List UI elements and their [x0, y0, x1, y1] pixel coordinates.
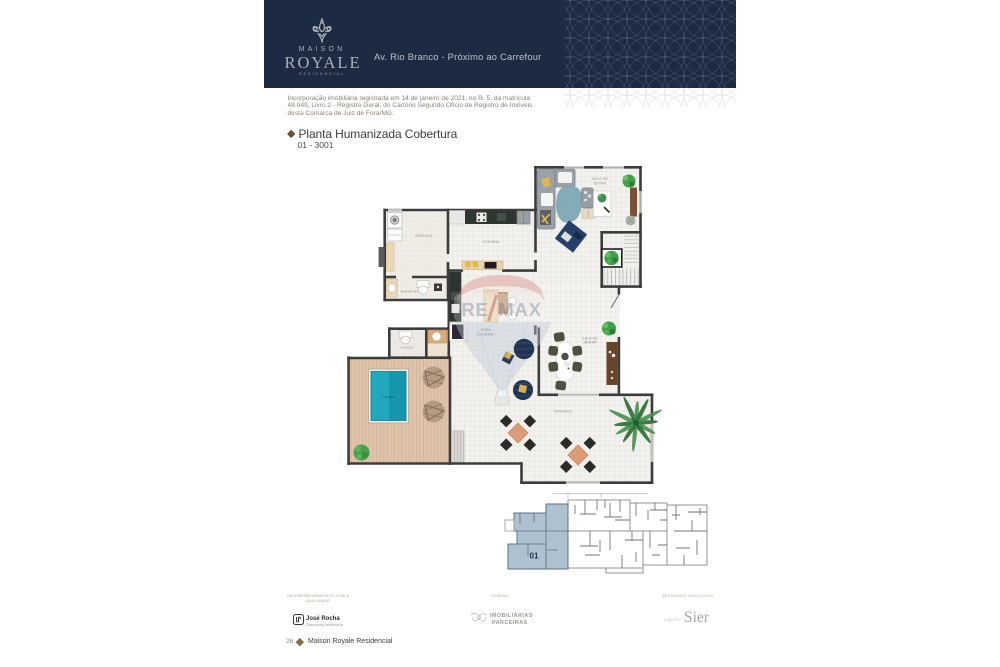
svg-text:PISCINA: PISCINA: [382, 395, 394, 399]
svg-text:ESTAR: ESTAR: [594, 182, 607, 186]
svg-text:TERRAÇO: TERRAÇO: [554, 410, 573, 414]
svg-text:SERVIÇO: SERVIÇO: [415, 234, 432, 238]
svg-text:BANHEIRO: BANHEIRO: [401, 290, 419, 294]
svg-text:RE: RE: [461, 299, 488, 320]
svg-text:LAVABO: LAVABO: [400, 346, 414, 350]
svg-text:01: 01: [530, 552, 539, 561]
svg-text:SALA DE: SALA DE: [592, 177, 609, 181]
svg-text:MAX: MAX: [498, 299, 542, 320]
svg-text:COZINHA: COZINHA: [482, 240, 500, 244]
svg-text:JANTAR: JANTAR: [583, 341, 597, 345]
